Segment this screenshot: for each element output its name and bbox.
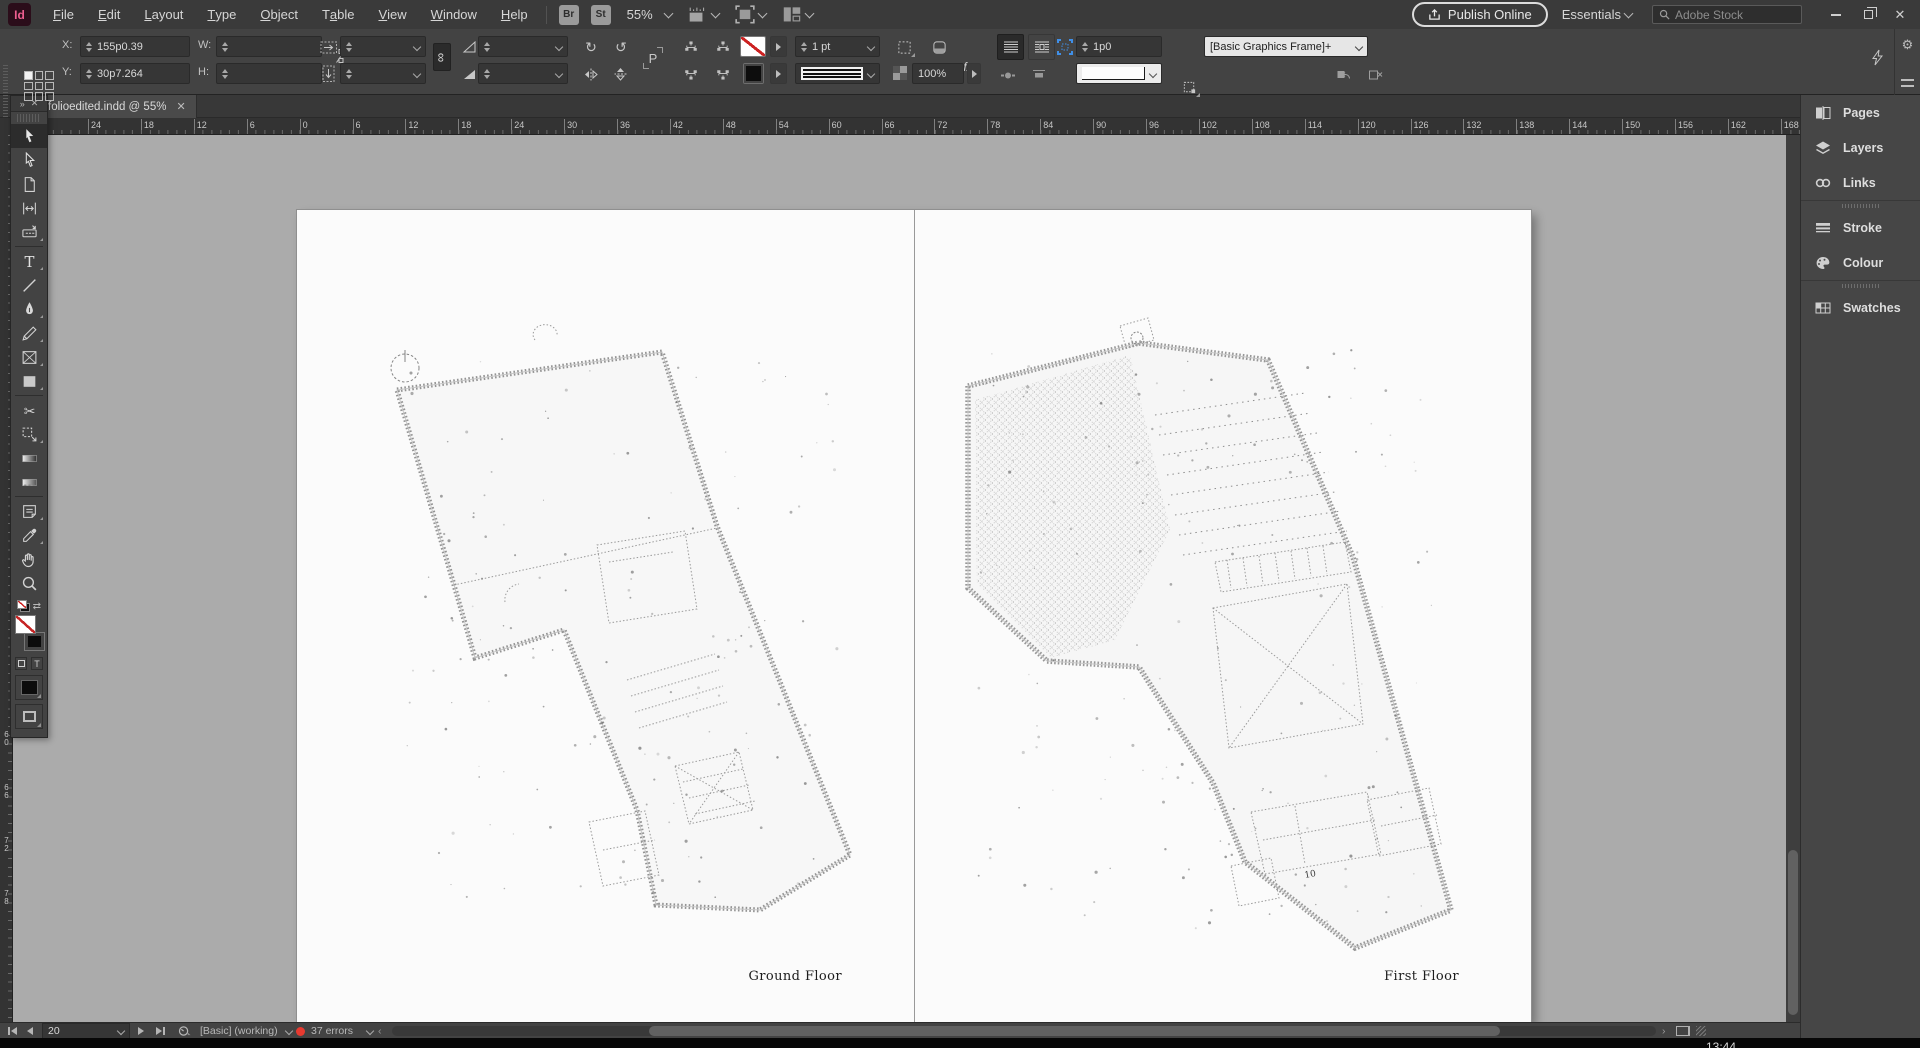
- workspace-chevron-icon: [1624, 8, 1634, 18]
- wrap-to-icon[interactable]: [1028, 65, 1050, 85]
- page-left[interactable]: Ground Floor: [297, 210, 914, 1022]
- menu-type[interactable]: Type: [195, 0, 248, 29]
- wrap-options-icon[interactable]: [997, 65, 1019, 85]
- status-bar: 20 [Basic] (working) 37 errors ‹ ›: [0, 1022, 1800, 1038]
- zoom-chevron-icon[interactable]: [663, 8, 673, 18]
- stroke-swatch-expand-button[interactable]: [770, 36, 787, 57]
- color-controls: ⇄ T: [11, 595, 47, 737]
- height-field[interactable]: [216, 63, 322, 84]
- panel-pages[interactable]: Pages: [1801, 95, 1920, 130]
- arrange-documents-icon[interactable]: [782, 6, 802, 24]
- swatches-icon: [1813, 299, 1833, 316]
- w-label: W:: [198, 39, 211, 51]
- quick-apply-lightning-icon[interactable]: [1866, 47, 1888, 67]
- shear-field[interactable]: [478, 36, 568, 57]
- content-collector-tool[interactable]: [11, 220, 47, 244]
- menubar-right-cluster: Publish Online Essentials Adobe Stock ✕: [1412, 2, 1920, 27]
- control-panel: X: 155p0.39 Y: 30p7.264 W: H: ∞: [0, 29, 1920, 95]
- eyedropper-tool[interactable]: [11, 523, 47, 547]
- corner-shape-icon[interactable]: [928, 37, 950, 57]
- select-content-icon[interactable]: [680, 64, 702, 84]
- menu-table[interactable]: Table: [310, 0, 367, 29]
- gradient-feather-tool[interactable]: [11, 470, 47, 494]
- h-label: H:: [198, 66, 209, 78]
- rotate-cw-icon[interactable]: ↻: [580, 37, 602, 57]
- vertical-scrollbar-thumb[interactable]: [1788, 850, 1798, 1015]
- select-parent-icon[interactable]: [712, 64, 734, 84]
- minimize-button[interactable]: [1822, 4, 1850, 26]
- stroke-type-dropdown[interactable]: [795, 63, 880, 84]
- tools-panel-grip[interactable]: [17, 114, 41, 122]
- panel-grip[interactable]: [3, 65, 8, 117]
- scale-y-field[interactable]: [340, 63, 426, 84]
- gear-icon[interactable]: ⚙: [1902, 37, 1914, 53]
- document-tab[interactable]: folioedited.indd @ 55% ✕: [38, 95, 197, 118]
- ruler-tick: 66: [0, 784, 13, 800]
- fill-color-swatch[interactable]: [743, 63, 764, 84]
- view-options-icon[interactable]: [688, 6, 708, 24]
- workspace-switcher[interactable]: Essentials: [1562, 7, 1636, 22]
- menu-file[interactable]: File: [41, 0, 86, 29]
- view-options-chevron-icon[interactable]: [710, 8, 720, 18]
- fill-swatch[interactable]: [15, 615, 36, 634]
- y-position-field[interactable]: 30p7.264: [80, 63, 190, 84]
- rectangle-tool[interactable]: [11, 369, 47, 393]
- menu-edit[interactable]: Edit: [86, 0, 132, 29]
- shear-icon: [458, 37, 480, 57]
- preflight-profile-menu[interactable]: [Basic] (working): [200, 1023, 292, 1039]
- page-right[interactable]: 10 First Floor: [914, 210, 1531, 1022]
- search-placeholder: Adobe Stock: [1675, 8, 1743, 22]
- error-dot-icon: [296, 1027, 305, 1036]
- control-panel-options-column: ⚙: [1894, 29, 1920, 95]
- layers-icon: [1813, 139, 1833, 156]
- select-previous-object-icon[interactable]: [680, 37, 702, 57]
- indesign-logo-icon: Id: [8, 3, 31, 26]
- formatting-affects-text-button[interactable]: T: [31, 657, 43, 670]
- page-number-field[interactable]: 20: [42, 1023, 130, 1039]
- taskbar-clock: 13:44: [1706, 1040, 1736, 1048]
- fill-swatch-expand-button[interactable]: [770, 63, 787, 84]
- page-tool[interactable]: [11, 172, 47, 196]
- pages-icon: [1813, 104, 1833, 121]
- document-tab-bar: folioedited.indd @ 55% ✕: [0, 95, 1800, 118]
- ruler-tick: 78: [0, 890, 13, 906]
- opacity-checker-icon: [893, 66, 907, 80]
- bridge-button[interactable]: Br: [559, 5, 579, 25]
- constrain-scale-link-icon[interactable]: ∞: [433, 43, 451, 71]
- tab-close-icon[interactable]: ✕: [176, 100, 185, 113]
- opacity-expand-button[interactable]: [967, 63, 981, 84]
- default-fill-stroke-icon[interactable]: [17, 600, 30, 612]
- gap-tool[interactable]: [11, 196, 47, 220]
- pencil-tool[interactable]: [11, 321, 47, 345]
- dock-divider[interactable]: [1801, 200, 1920, 210]
- scroll-left-arrow[interactable]: ‹: [378, 1023, 382, 1039]
- menu-list: FileEditLayoutTypeObjectTableViewWindowH…: [41, 0, 540, 29]
- note-tool[interactable]: [11, 499, 47, 523]
- scale-x-field[interactable]: [340, 36, 426, 57]
- page-spread[interactable]: Ground Floor: [297, 210, 1531, 1022]
- panel-dock: PagesLayersLinksStrokeColourSwatches: [1800, 95, 1920, 1038]
- break-link-style-icon[interactable]: [1364, 65, 1386, 85]
- menu-layout[interactable]: Layout: [132, 0, 195, 29]
- swap-fill-stroke-icon[interactable]: ⇄: [33, 601, 41, 612]
- line-tool[interactable]: [11, 273, 47, 297]
- preflight-errors-menu[interactable]: 37 errors: [296, 1023, 373, 1039]
- gap-size-field[interactable]: 1p0: [1076, 36, 1162, 57]
- last-page-button[interactable]: [156, 1023, 165, 1039]
- zoom-level-value[interactable]: 55%: [627, 7, 653, 22]
- previous-page-button[interactable]: [27, 1023, 33, 1039]
- tool-separator: [15, 496, 43, 497]
- reference-point-proxy[interactable]: [24, 71, 54, 101]
- pasteboard[interactable]: Ground Floor: [13, 135, 1786, 1022]
- scissors-tool[interactable]: ✂: [11, 398, 47, 422]
- menu-window[interactable]: Window: [419, 0, 489, 29]
- zoom-tool[interactable]: [11, 571, 47, 595]
- tool-separator: [15, 395, 43, 396]
- scroll-right-arrow[interactable]: ›: [1662, 1023, 1666, 1039]
- menu-view[interactable]: View: [366, 0, 418, 29]
- selection-tool[interactable]: [11, 124, 47, 148]
- panel-swatches[interactable]: Swatches: [1801, 290, 1920, 325]
- pen-tool[interactable]: [11, 297, 47, 321]
- panel-colour[interactable]: Colour: [1801, 245, 1920, 280]
- no-text-wrap-button[interactable]: [997, 34, 1024, 60]
- screen-mode-icon[interactable]: [735, 6, 755, 24]
- scale-y-icon: [319, 63, 339, 85]
- first-floor-plan: 10: [915, 210, 1532, 1022]
- page-label-first-floor: First Floor: [1384, 969, 1459, 984]
- search-icon: [1659, 9, 1670, 20]
- apply-color-button[interactable]: [15, 675, 43, 700]
- dock-divider[interactable]: [1801, 280, 1920, 290]
- arrange-documents-chevron-icon[interactable]: [804, 8, 814, 18]
- stroke-color-swatch[interactable]: [740, 36, 766, 57]
- spread-view-icon[interactable]: [1676, 1023, 1690, 1039]
- select-next-object-icon[interactable]: [712, 37, 734, 57]
- resize-grip-icon[interactable]: [1696, 1023, 1706, 1039]
- horizontal-ruler[interactable]: 2418126061218243036424854606672788490961…: [13, 118, 1800, 135]
- svg-text:✂: ✂: [23, 402, 35, 418]
- apply-none-button[interactable]: [15, 704, 43, 729]
- panel-links[interactable]: Links: [1801, 165, 1920, 200]
- menu-bar: Id FileEditLayoutTypeObjectTableViewWind…: [0, 0, 1920, 29]
- window-controls: ✕: [1822, 4, 1914, 26]
- screen-mode-chevron-icon[interactable]: [757, 8, 767, 18]
- x-label: X:: [62, 39, 72, 51]
- upload-icon: [1428, 8, 1441, 21]
- stroke-swatch[interactable]: [24, 632, 45, 651]
- panel-layers[interactable]: Layers: [1801, 130, 1920, 165]
- horizontal-scrollbar-thumb[interactable]: [649, 1026, 1500, 1036]
- publish-online-button[interactable]: Publish Online: [1412, 2, 1548, 27]
- stroke-weight-field[interactable]: 1 pt: [795, 36, 880, 57]
- links-icon: [1813, 174, 1833, 191]
- ruler-tick: 72: [0, 837, 13, 853]
- preflight-icon[interactable]: [178, 1023, 191, 1039]
- indesign-window: Id FileEditLayoutTypeObjectTableViewWind…: [0, 0, 1920, 1048]
- object-style-icon: [1178, 77, 1200, 97]
- x-position-field[interactable]: 155p0.39: [80, 36, 190, 57]
- divider: [546, 6, 547, 24]
- wrap-around-bounding-box-button[interactable]: [1028, 34, 1055, 60]
- width-field[interactable]: [216, 36, 322, 57]
- close-button[interactable]: ✕: [1886, 4, 1914, 26]
- taskbar-edge: 13:44: [0, 1038, 1920, 1048]
- menu-object[interactable]: Object: [248, 0, 310, 29]
- horizontal-scrollbar[interactable]: [392, 1026, 1656, 1036]
- rotate-ccw-icon[interactable]: ↺: [610, 37, 632, 57]
- direct-selection-tool[interactable]: [11, 148, 47, 172]
- opacity-field[interactable]: 100%: [912, 63, 964, 84]
- hand-tool[interactable]: [11, 547, 47, 571]
- flip-horizontal-icon[interactable]: [580, 64, 602, 84]
- solid-stroke-preview: [801, 67, 863, 80]
- svg-text:T: T: [24, 253, 34, 270]
- tool-list: T✂: [11, 124, 47, 595]
- panel-menu-icon[interactable]: [1901, 79, 1914, 87]
- blank-style-dropdown[interactable]: [1076, 63, 1162, 84]
- clear-overrides-icon[interactable]: [1332, 65, 1354, 85]
- rotation-angle-icon: [458, 64, 480, 84]
- vertical-scrollbar[interactable]: [1786, 135, 1800, 1022]
- stroke-icon: [1813, 219, 1833, 236]
- object-style-dropdown[interactable]: [Basic Graphics Frame]+: [1204, 36, 1368, 57]
- select-container-icon[interactable]: P: [642, 46, 664, 70]
- restore-button[interactable]: [1854, 4, 1882, 26]
- rotation-field[interactable]: [478, 63, 568, 84]
- plan-annotation: 10: [1304, 869, 1317, 881]
- ground-floor-plan: [297, 210, 914, 1022]
- flip-vertical-icon[interactable]: [611, 63, 631, 85]
- tools-panel: » ✕ T✂ ⇄ T: [10, 95, 48, 738]
- type-tool[interactable]: T: [11, 249, 47, 273]
- menu-help[interactable]: Help: [489, 0, 540, 29]
- colour-icon: [1813, 254, 1833, 271]
- scale-x-icon: [318, 37, 340, 57]
- formatting-affects-container-button[interactable]: [15, 657, 27, 670]
- page-label-ground-floor: Ground Floor: [749, 969, 842, 984]
- adobe-stock-search-input[interactable]: Adobe Stock: [1652, 5, 1802, 24]
- first-page-button[interactable]: [8, 1023, 17, 1039]
- gradient-swatch-tool[interactable]: [11, 446, 47, 470]
- panel-stroke[interactable]: Stroke: [1801, 210, 1920, 245]
- stock-button[interactable]: St: [591, 5, 611, 25]
- next-page-button[interactable]: [138, 1023, 144, 1039]
- corner-options-icon[interactable]: [893, 37, 915, 57]
- frame-fitting-icon[interactable]: [1054, 37, 1076, 57]
- free-transform-tool[interactable]: [11, 422, 47, 446]
- rectangle-frame-tool[interactable]: [11, 345, 47, 369]
- tool-separator: [15, 246, 43, 247]
- y-label: Y:: [62, 66, 72, 78]
- document-tab-title: folioedited.indd @ 55%: [48, 101, 166, 113]
